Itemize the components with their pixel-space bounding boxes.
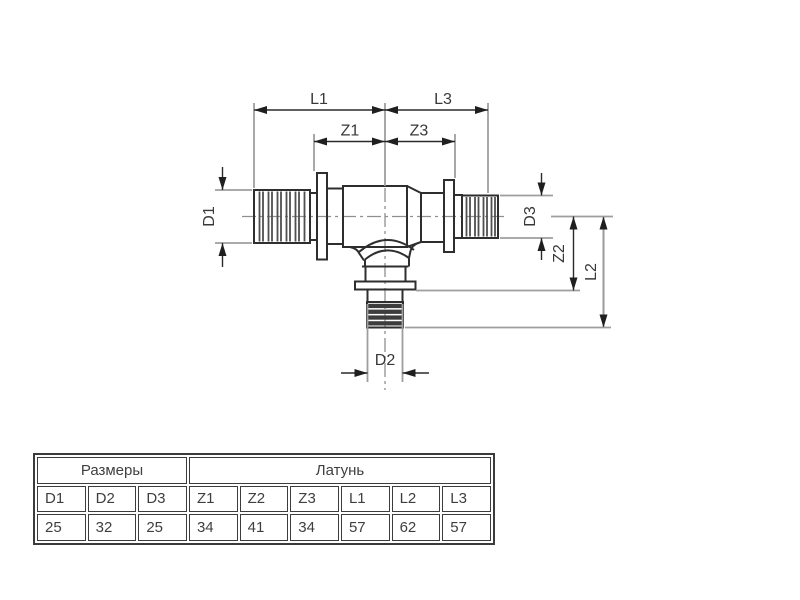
arrowhead: [570, 278, 578, 291]
column-header-row: D1 D2 D3 Z1 Z2 Z3 L1 L2 L3: [37, 486, 491, 513]
dimension-z1: Z1: [314, 123, 385, 172]
dimension-d3: D3: [500, 173, 553, 260]
dim-label-l3: L3: [434, 91, 452, 108]
page: { "drawing": { "labels": { "L1": "L1", "…: [0, 0, 800, 600]
arrowhead: [538, 183, 546, 196]
dim-label-d2: D2: [375, 352, 396, 369]
right-cylinder: [421, 193, 444, 242]
branch-dome-inner: [365, 250, 409, 259]
value-l2: 62: [392, 514, 441, 541]
dim-label-z1: Z1: [341, 123, 360, 140]
arrowhead: [570, 217, 578, 230]
dimensions-table: Размеры Латунь D1 D2 D3 Z1 Z2 Z3 L1 L2 L…: [33, 453, 495, 545]
dimension-l2: L2: [405, 217, 611, 328]
col-header-d2: D2: [88, 486, 137, 513]
arrowhead: [538, 238, 546, 251]
bottom-branch-port: [350, 240, 418, 328]
arrowhead: [403, 369, 416, 377]
table-group-header-sizes: Размеры: [37, 457, 187, 484]
col-header-z3: Z3: [290, 486, 339, 513]
values-row: 25 32 25 34 41 34 57 62 57: [37, 514, 491, 541]
technical-drawing: L1 L3 Z1 Z3 D1 D3: [0, 0, 800, 450]
value-z3: 34: [290, 514, 339, 541]
col-header-l3: L3: [442, 486, 491, 513]
col-header-l1: L1: [341, 486, 390, 513]
arrowhead: [219, 243, 227, 256]
arrowhead: [219, 177, 227, 190]
value-l1: 57: [341, 514, 390, 541]
col-header-d1: D1: [37, 486, 86, 513]
arrowhead: [385, 106, 398, 114]
dimension-z3: Z3: [385, 123, 455, 179]
arrowhead: [600, 217, 608, 230]
arrowhead: [385, 138, 398, 146]
value-z1: 34: [189, 514, 238, 541]
dim-label-l1: L1: [310, 91, 328, 108]
value-d1: 25: [37, 514, 86, 541]
col-header-z1: Z1: [189, 486, 238, 513]
arrowhead: [372, 106, 385, 114]
arrowhead: [600, 315, 608, 328]
value-d3: 25: [138, 514, 187, 541]
value-z2: 41: [240, 514, 289, 541]
value-d2: 32: [88, 514, 137, 541]
dim-label-d3: D3: [522, 206, 539, 227]
value-l3: 57: [442, 514, 491, 541]
dim-label-l2: L2: [583, 263, 600, 281]
col-header-z2: Z2: [240, 486, 289, 513]
arrowhead: [314, 138, 327, 146]
arrowhead: [372, 138, 385, 146]
arrowhead: [442, 138, 455, 146]
arrowhead: [254, 106, 267, 114]
arrowhead: [475, 106, 488, 114]
dim-label-z2: Z2: [551, 244, 568, 263]
tee-fitting: [254, 173, 498, 328]
group-header-row: Размеры Латунь: [37, 457, 491, 484]
col-header-d3: D3: [138, 486, 187, 513]
dim-label-d1: D1: [201, 206, 218, 227]
spec-table: Размеры Латунь D1 D2 D3 Z1 Z2 Z3 L1 L2 L…: [35, 455, 493, 543]
arrowhead: [355, 369, 368, 377]
dim-label-z3: Z3: [410, 123, 429, 140]
table-group-header-material: Латунь: [189, 457, 491, 484]
col-header-l2: L2: [392, 486, 441, 513]
